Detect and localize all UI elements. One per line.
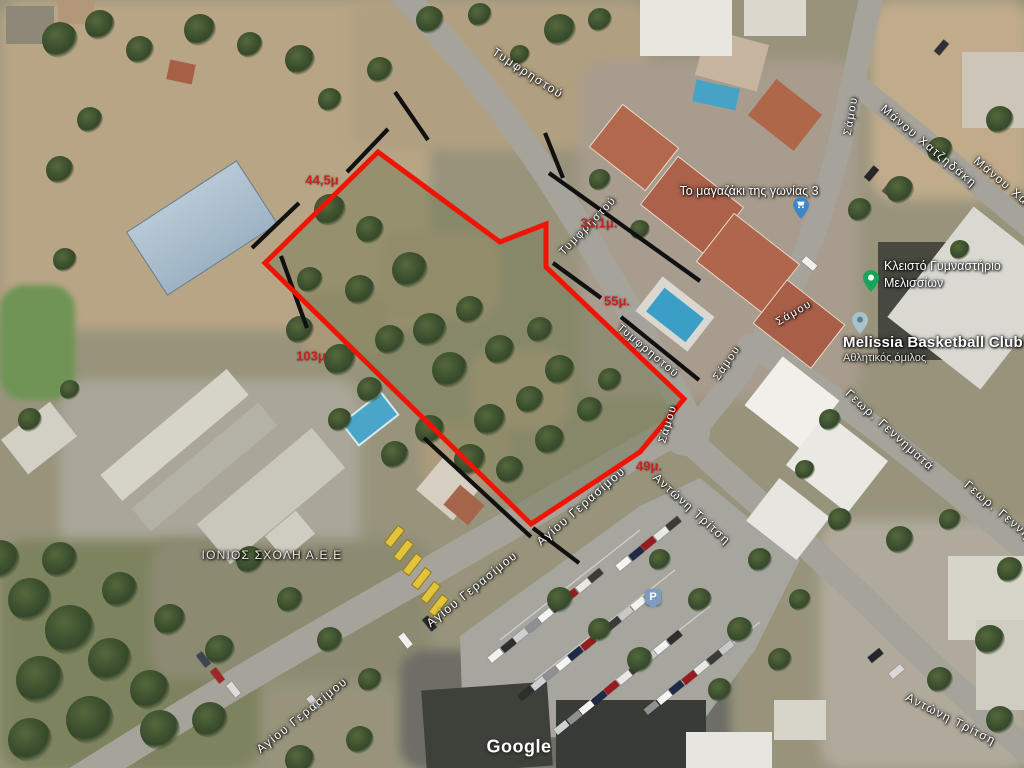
street-label-manou-b: Μάνου Χατζηδάκη: [971, 154, 1024, 243]
street-label-geor-gennimata-b: Γεωρ. Γεννηματά: [962, 478, 1024, 563]
street-label-manou-a: Μάνου Χατζηδάκη: [878, 102, 980, 191]
street-label-samou-b: Σάμου: [711, 343, 743, 383]
street-label-tymfristou-top: Τυμφρηστού: [490, 45, 567, 102]
dimension-label-44-5: 44,5μ: [305, 173, 338, 188]
poi-basketball-name: Melissia Basketball Club: [843, 334, 1023, 351]
basketball-pin-icon[interactable]: [852, 312, 868, 334]
poi-basketball-subtitle: Αθλητικός όμιλος: [843, 352, 926, 364]
street-label-antoni-tritsi-b: Αντώνη Τρίτση: [903, 690, 998, 748]
google-logo[interactable]: Google: [487, 737, 552, 758]
dimension-label-103: 103μ: [296, 349, 326, 364]
poi-gym-label: Κλειστό Γυμναστήριο Μελισσίων: [884, 258, 1001, 292]
dimension-label-49: 49μ.: [636, 459, 662, 474]
street-label-antoni-tritsi-a: Αντώνη Τρίτση: [650, 470, 734, 547]
poi-gym-label-line1: Κλειστό Γυμναστήριο: [884, 258, 1001, 275]
street-label-agiou-gerasimou-a: Αγίου Γερασίμου: [534, 464, 628, 549]
shop-pin-icon[interactable]: [793, 197, 809, 219]
poi-gym-label-line2: Μελισσίων: [884, 275, 1001, 292]
satellite-map[interactable]: Τυμφρηστού Τυμφρηστού Τυμφρηστού Σάμου Σ…: [0, 0, 1024, 768]
street-label-agiou-gerasimou-b: Αγίου Γερασίμου: [424, 548, 521, 630]
street-label-samou-c: Σάμου: [656, 403, 679, 444]
street-label-geor-gennimata-a: Γεωρ. Γεννηματά: [843, 386, 938, 473]
street-label-samou-a: Σάμου: [774, 298, 814, 328]
poi-shop-label: Το μαγαζάκι της γωνίας 3: [679, 184, 818, 198]
street-label-agiou-gerasimou-c: Αγίου Γερασίμου: [254, 674, 351, 756]
poi-school-label: ΙΟΝΙΟΣ ΣΧΟΛΗ Α.Ε.Ε: [202, 548, 343, 562]
street-label-samou-top: Σάμου: [842, 95, 861, 136]
dimension-label-55: 55μ.: [604, 294, 630, 309]
labels-layer: Τυμφρηστού Τυμφρηστού Τυμφρηστού Σάμου Σ…: [0, 0, 1024, 768]
street-label-tymfristou-low: Τυμφρηστού: [615, 322, 682, 381]
parking-icon[interactable]: P: [645, 589, 661, 605]
dimension-label-31-1: 31,1μ.: [581, 216, 618, 231]
gym-pin-icon[interactable]: [863, 270, 879, 292]
